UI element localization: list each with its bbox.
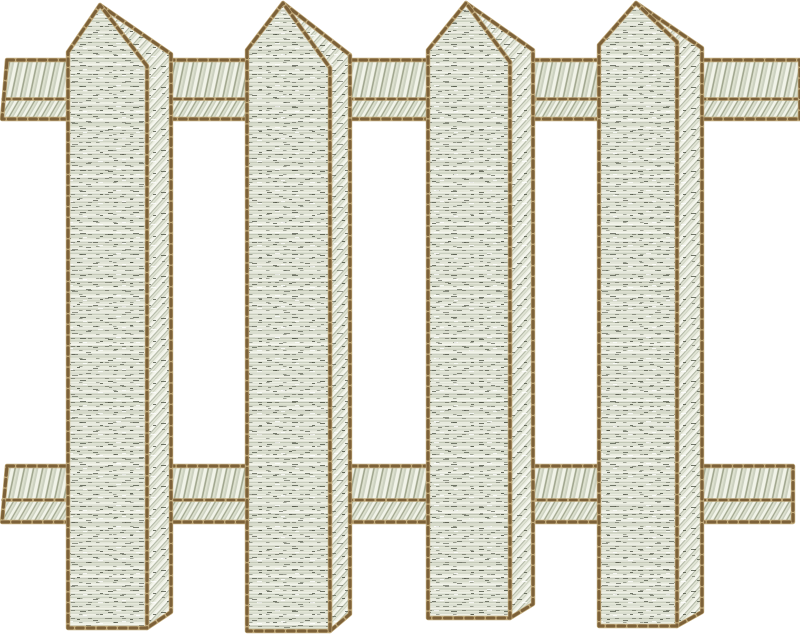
picket-1 — [68, 5, 171, 628]
embroidery-canvas — [0, 0, 800, 635]
picket-4 — [599, 3, 702, 626]
picket-fence-graphic — [0, 0, 800, 635]
picket-2 — [247, 3, 350, 631]
picket-3 — [428, 3, 533, 618]
